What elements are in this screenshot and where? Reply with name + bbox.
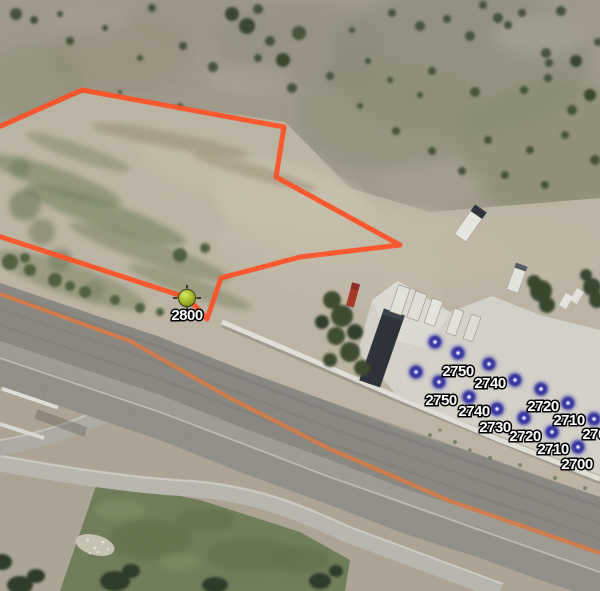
spray-elevation-marker[interactable] [405, 361, 428, 384]
elevation-label: 2800 [171, 307, 203, 324]
elevation-label: 2710 [553, 412, 585, 429]
spray-elevation-marker[interactable] [504, 369, 527, 392]
spray-elevation-marker[interactable] [424, 331, 447, 354]
satellite-map: 2750274027502740272027302710272027002710… [0, 0, 600, 591]
grain-texture [0, 0, 600, 591]
elevation-label: 2700 [582, 426, 600, 443]
elevation-label: 2720 [509, 428, 541, 445]
elevation-label: 2700 [561, 456, 593, 473]
spray-elevation-marker[interactable] [447, 342, 470, 365]
elevation-label: 2740 [458, 403, 490, 420]
elevation-label: 2730 [479, 419, 511, 436]
elevation-label: 2750 [425, 392, 457, 409]
spray-elevation-marker[interactable] [478, 353, 501, 376]
elevation-label: 2740 [474, 375, 506, 392]
elevation-label: 2750 [442, 363, 474, 380]
map-canvas[interactable]: 2750274027502740272027302710272027002710… [0, 0, 600, 591]
